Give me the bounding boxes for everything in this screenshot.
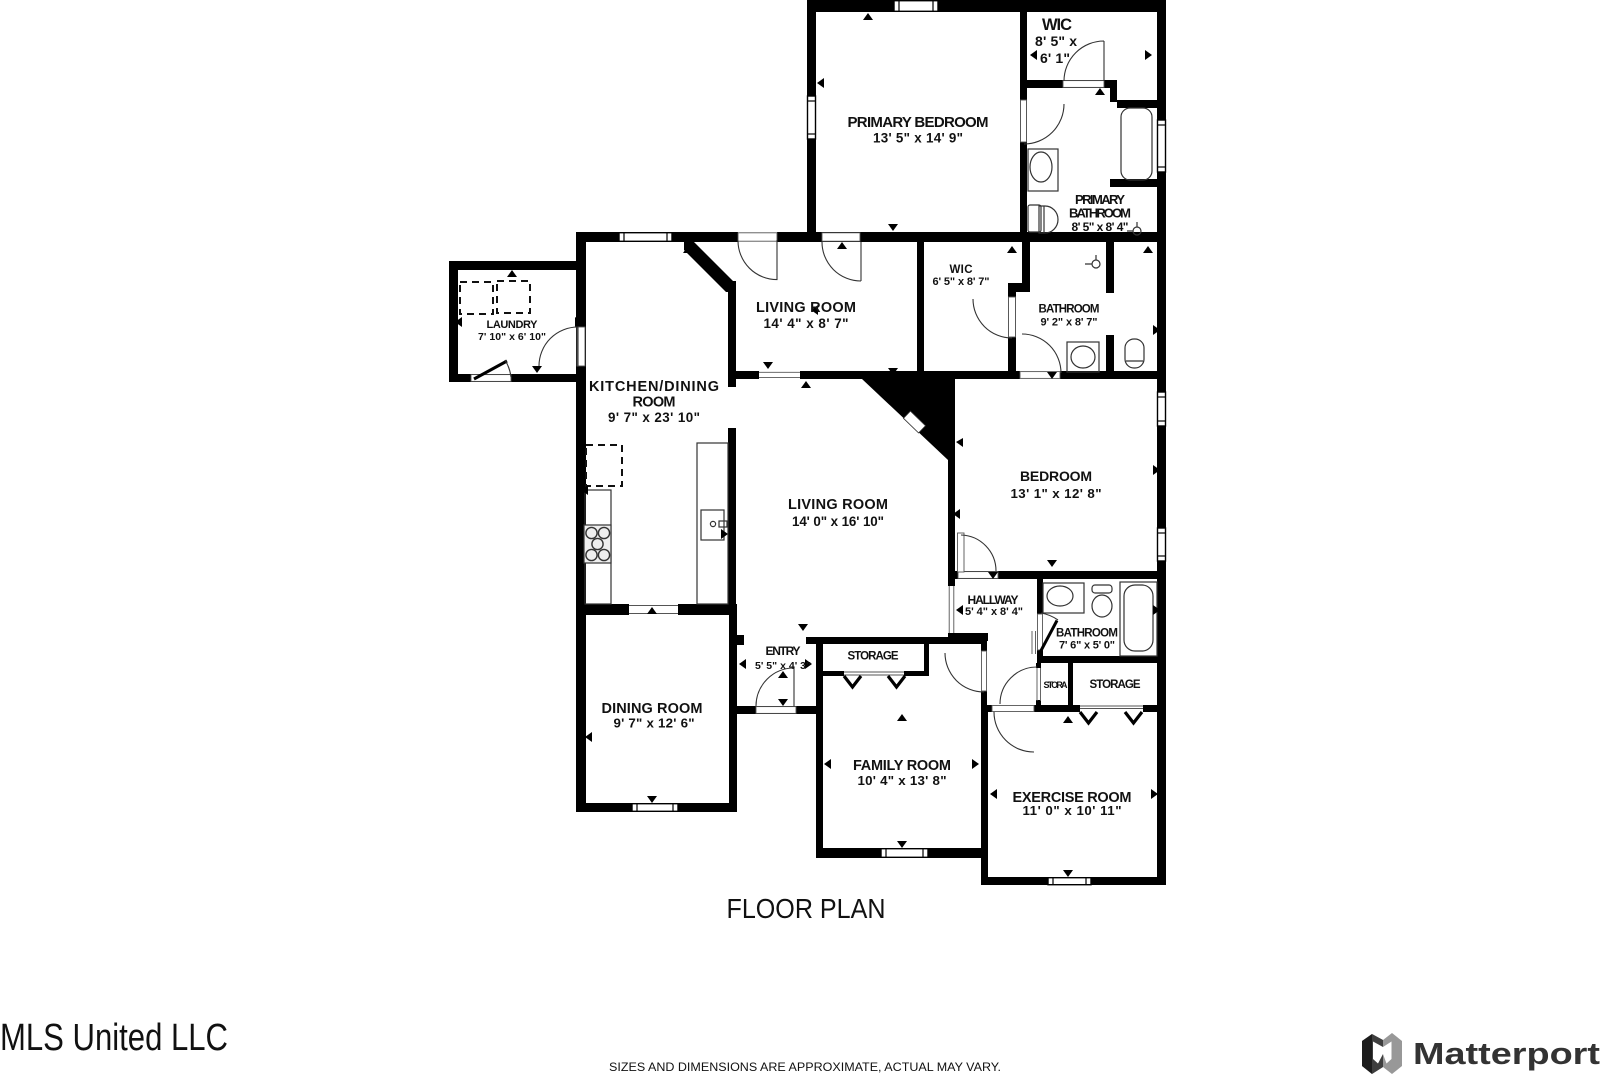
svg-text:PRIMARY BEDROOM: PRIMARY BEDROOM [848, 114, 989, 131]
svg-text:ENTRY: ENTRY [766, 644, 801, 658]
svg-text:14' 4" x 8' 7": 14' 4" x 8' 7" [764, 316, 849, 331]
svg-text:BATHROOM: BATHROOM [1069, 206, 1131, 221]
svg-text:STORA: STORA [1044, 680, 1069, 690]
svg-text:WIC: WIC [1042, 16, 1072, 34]
svg-text:FAMILY ROOM: FAMILY ROOM [853, 758, 951, 774]
svg-text:STORAGE: STORAGE [1090, 679, 1141, 691]
svg-text:LAUNDRY: LAUNDRY [487, 319, 539, 331]
svg-text:9' 2" x 8' 7": 9' 2" x 8' 7" [1041, 317, 1098, 329]
svg-text:WIC: WIC [950, 264, 973, 276]
svg-text:BEDROOM: BEDROOM [1020, 468, 1092, 484]
svg-text:HALLWAY: HALLWAY [968, 593, 1019, 607]
svg-text:FLOOR PLAN: FLOOR PLAN [727, 893, 886, 924]
svg-text:ROOM: ROOM [633, 395, 676, 411]
svg-text:STORAGE: STORAGE [848, 651, 899, 663]
svg-text:BATHROOM: BATHROOM [1056, 628, 1118, 640]
svg-text:5' 4" x 8' 4": 5' 4" x 8' 4" [965, 606, 1023, 618]
svg-text:10' 4" x 13' 8": 10' 4" x 13' 8" [858, 773, 947, 788]
svg-text:SIZES AND DIMENSIONS ARE APPRO: SIZES AND DIMENSIONS ARE APPROXIMATE, AC… [609, 1060, 1001, 1074]
svg-text:BATHROOM: BATHROOM [1039, 304, 1100, 316]
svg-text:8' 5" x 8' 4": 8' 5" x 8' 4" [1072, 220, 1129, 234]
svg-text:8' 5" x: 8' 5" x [1035, 33, 1077, 49]
svg-text:6' 5" x 8' 7": 6' 5" x 8' 7" [933, 276, 990, 288]
svg-text:7' 6" x 5' 0": 7' 6" x 5' 0" [1059, 640, 1115, 652]
svg-text:14' 0" x 16' 10": 14' 0" x 16' 10" [792, 514, 884, 529]
svg-text:Matterport: Matterport [1413, 1036, 1600, 1071]
svg-text:9' 7" x 12' 6": 9' 7" x 12' 6" [614, 716, 695, 731]
svg-text:11' 0" x 10' 11": 11' 0" x 10' 11" [1023, 803, 1122, 818]
svg-text:LIVING ROOM: LIVING ROOM [788, 497, 888, 513]
svg-text:KITCHEN/DINING: KITCHEN/DINING [589, 379, 719, 395]
svg-text:LIVING ROOM: LIVING ROOM [756, 300, 856, 316]
svg-text:6' 1": 6' 1" [1040, 50, 1070, 66]
svg-text:13' 1" x 12' 8": 13' 1" x 12' 8" [1011, 486, 1102, 501]
svg-text:9' 7" x 23' 10": 9' 7" x 23' 10" [608, 410, 700, 425]
svg-text:MLS United LLC: MLS United LLC [0, 1017, 228, 1059]
svg-text:7' 10" x 6' 10": 7' 10" x 6' 10" [478, 331, 546, 343]
svg-text:13' 5" x 14' 9": 13' 5" x 14' 9" [873, 131, 963, 146]
svg-text:5' 5" x 4' 3": 5' 5" x 4' 3" [755, 660, 811, 672]
